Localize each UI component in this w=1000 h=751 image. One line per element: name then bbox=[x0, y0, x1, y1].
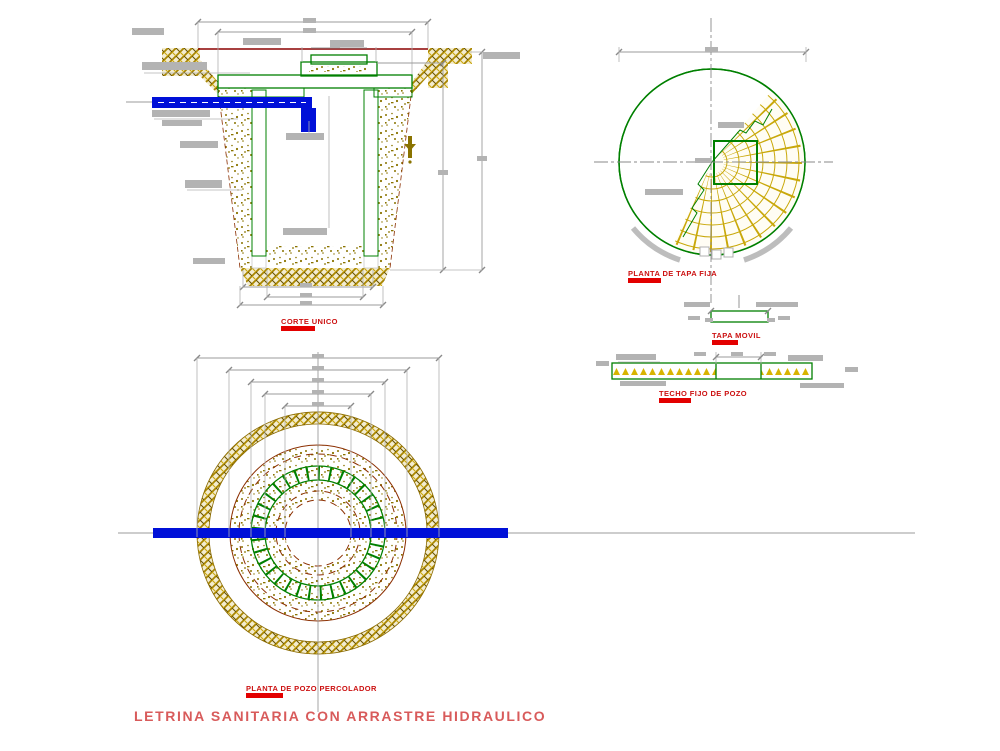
drawing-title: LETRINA SANITARIA CON ARRASTRE HIDRAULIC… bbox=[134, 708, 546, 724]
planta-pozo-percolador-view: PLANTA DE POZO PERCOLADOR bbox=[118, 352, 915, 712]
cover-slab bbox=[218, 75, 412, 88]
movable-cover-section bbox=[711, 311, 768, 322]
planta-tapa-fija-label: PLANTA DE TAPA FIJA bbox=[628, 269, 717, 278]
cover-lid bbox=[311, 55, 367, 64]
label-underline bbox=[712, 340, 738, 345]
brick-lining-left bbox=[252, 90, 266, 256]
pit-wall-left bbox=[218, 88, 266, 268]
cad-drawing-canvas: CORTE UNICO bbox=[0, 0, 1000, 751]
leader-arc-left bbox=[633, 228, 680, 260]
pit-wall-right bbox=[364, 88, 412, 268]
planta-tapa-fija-view: PLANTA DE TAPA FIJA bbox=[594, 18, 833, 303]
techo-fijo-label: TECHO FIJO DE POZO bbox=[659, 389, 747, 398]
corte-unico-label: CORTE UNICO bbox=[281, 317, 338, 326]
label-underline bbox=[246, 693, 283, 698]
inlet-pipe bbox=[152, 97, 312, 108]
label-underline bbox=[281, 326, 315, 331]
techo-fijo-view: TECHO FIJO DE POZO bbox=[596, 352, 858, 403]
label-underline bbox=[659, 398, 691, 403]
brick-lining-right bbox=[364, 90, 378, 256]
tapa-movil-label: TAPA MOVIL bbox=[712, 331, 761, 340]
pit-bottom-hatch bbox=[240, 268, 390, 286]
gravel-layer bbox=[266, 246, 364, 266]
inlet-pipe-plan bbox=[153, 528, 508, 538]
ground-hatch-right bbox=[428, 48, 472, 64]
planta-pozo-percolador-label: PLANTA DE POZO PERCOLADOR bbox=[246, 684, 377, 693]
inlet-pipe-elbow bbox=[301, 108, 316, 132]
dimensions-top bbox=[195, 18, 443, 74]
annotation-text-blob bbox=[286, 133, 324, 140]
latrine-technical-drawing: CORTE UNICO bbox=[0, 0, 1000, 751]
tapa-movil-view: TAPA MOVIL bbox=[684, 295, 798, 345]
corte-unico-view: CORTE UNICO bbox=[126, 18, 520, 331]
label-underline bbox=[628, 278, 661, 283]
